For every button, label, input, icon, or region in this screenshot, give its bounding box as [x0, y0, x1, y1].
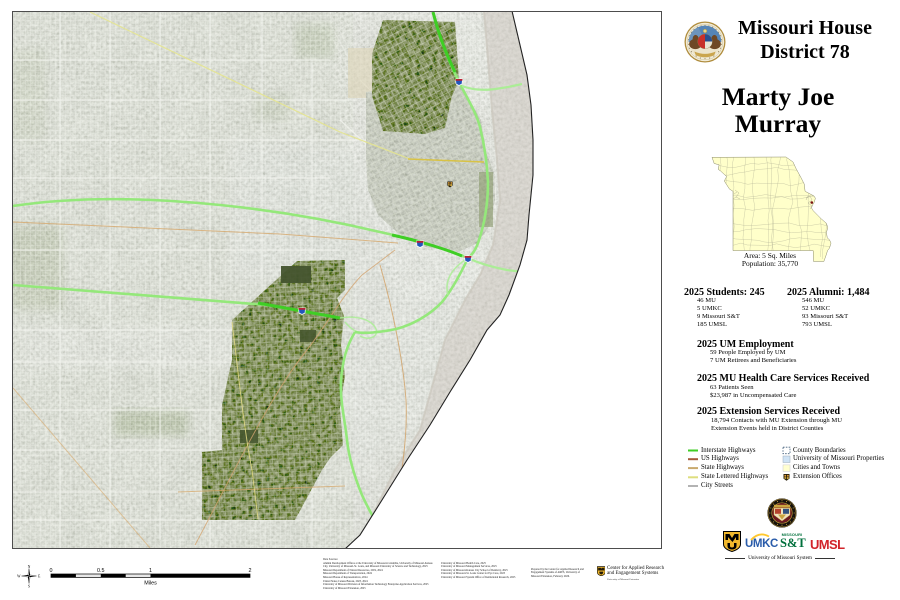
svg-text:0.5: 0.5 — [97, 568, 105, 574]
svg-text:Miles: Miles — [144, 581, 157, 587]
svg-text:2: 2 — [249, 568, 252, 574]
svg-text:0: 0 — [50, 568, 53, 574]
svg-text:N: N — [28, 565, 31, 569]
svg-text:1: 1 — [149, 568, 152, 574]
svg-text:W: W — [17, 574, 21, 578]
svg-text:E: E — [38, 574, 41, 578]
svg-text:S: S — [28, 584, 30, 588]
